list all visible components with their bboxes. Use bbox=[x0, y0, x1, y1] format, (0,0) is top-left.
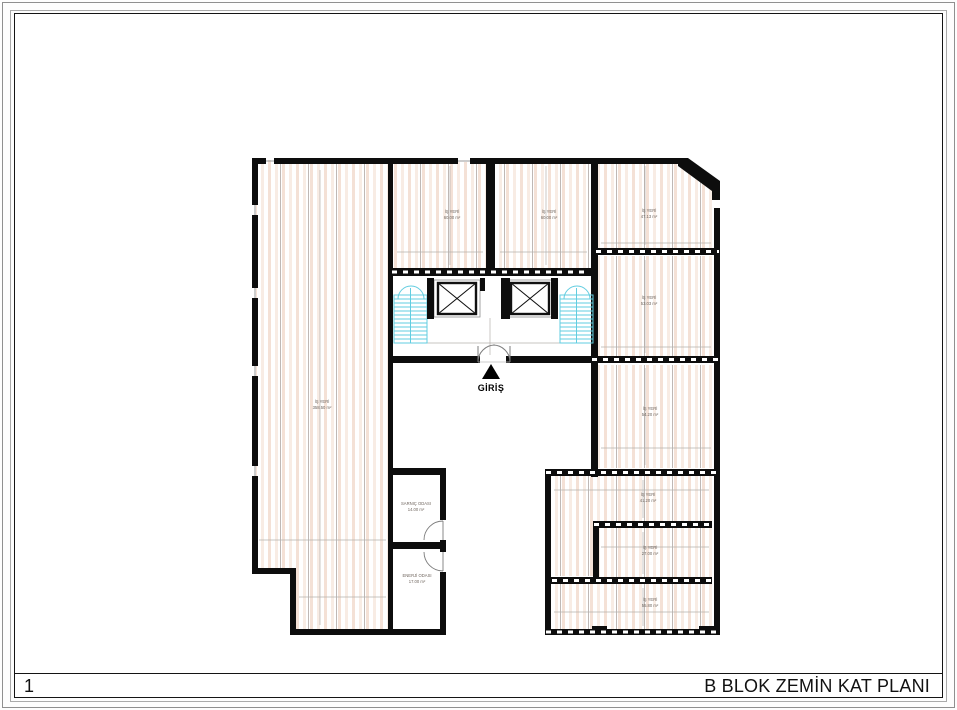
entrance-marker: GİRİŞ bbox=[478, 364, 505, 393]
room-area: 55.80 m² bbox=[642, 603, 659, 608]
room-area: 47.13 m² bbox=[641, 214, 658, 219]
sheet-number: 1 bbox=[24, 676, 34, 697]
room-label: İŞ YERİ bbox=[643, 597, 658, 602]
room-area: 27.00 m² bbox=[642, 551, 659, 556]
room-area: 41.20 m² bbox=[640, 498, 657, 503]
room-label: İŞ YERİ bbox=[641, 492, 656, 497]
room-label: ENERJİ ODASI bbox=[402, 573, 431, 578]
floor-plan-canvas: GİRİŞ İŞ YERİ 358.50 m² İŞ YERİ 60.00 m²… bbox=[0, 0, 957, 710]
room-label: İŞ YERİ bbox=[643, 406, 658, 411]
room-label: SARNIÇ ODASI bbox=[401, 501, 431, 506]
room-label: İŞ YERİ bbox=[643, 545, 658, 550]
room-area: 53.03 m² bbox=[641, 301, 658, 306]
room-area: 14.00 m² bbox=[408, 507, 425, 512]
room-label: İŞ YERİ bbox=[642, 295, 657, 300]
entrance-label: GİRİŞ bbox=[478, 383, 505, 393]
staircase-east-icon bbox=[560, 286, 593, 343]
room-area: 54.20 m² bbox=[642, 412, 659, 417]
elevator-shaft-west-icon bbox=[427, 278, 485, 319]
entrance-arrow-icon bbox=[482, 364, 500, 379]
title-bar-divider bbox=[14, 673, 943, 674]
room-area: 60.00 m² bbox=[444, 215, 461, 220]
staircase-west-icon bbox=[394, 286, 427, 343]
elevator-shaft-east-icon bbox=[501, 278, 558, 319]
room-area: 17.00 m² bbox=[409, 579, 426, 584]
room-label: İŞ YERİ bbox=[315, 399, 330, 404]
room-area: 60.00 m² bbox=[541, 215, 558, 220]
room-label: İŞ YERİ bbox=[542, 209, 557, 214]
drawing-sheet: { "sheet": { "number": "1", "title": "B … bbox=[0, 0, 957, 710]
entrance-door-icon bbox=[478, 345, 510, 362]
room-label: İŞ YERİ bbox=[445, 209, 460, 214]
sheet-title: B BLOK ZEMİN KAT PLANI bbox=[704, 676, 930, 697]
room-label: İŞ YERİ bbox=[642, 208, 657, 213]
room-area: 358.50 m² bbox=[313, 405, 332, 410]
